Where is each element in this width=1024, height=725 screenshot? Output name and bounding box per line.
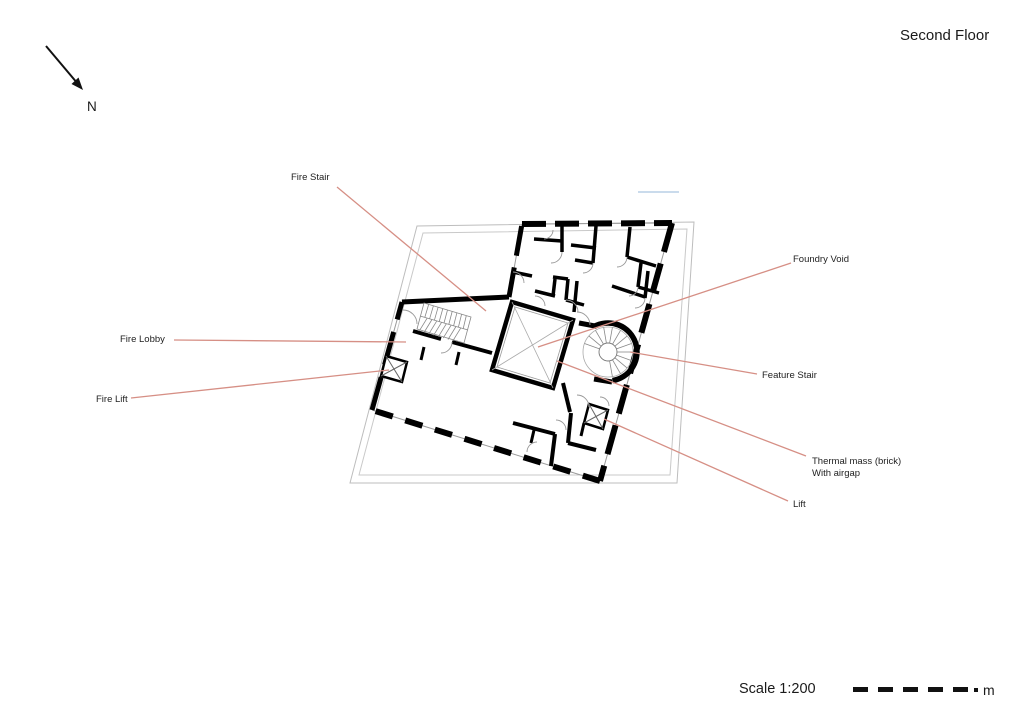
scale-label: Scale 1:200	[739, 681, 816, 697]
floor-plan-drawing	[0, 0, 1024, 725]
annotation-thermal-mass-line2: With airgap	[812, 468, 901, 480]
scale-bar	[853, 687, 978, 692]
scale-unit-label: m	[983, 682, 995, 698]
north-arrow-icon	[46, 46, 83, 90]
annotation-fire-stair-label: Fire Stair	[291, 172, 330, 184]
leader-line-lift	[604, 419, 788, 501]
lift-plan	[584, 404, 608, 429]
annotation-lift-label: Lift	[793, 499, 806, 511]
annotation-foundry-void-label: Foundry Void	[793, 254, 849, 266]
fire-stair-plan	[417, 303, 471, 343]
drawing-canvas: Second Floor N Fire Stair Fire Lobby Fir…	[0, 0, 1024, 725]
north-label: N	[87, 99, 97, 114]
leader-line-fire-lobby	[174, 340, 406, 342]
leader-line-feature-stair	[630, 352, 757, 374]
leader-line-fire-lift	[131, 370, 389, 398]
annotation-thermal-mass-label: Thermal mass (brick) With airgap	[812, 456, 901, 480]
fire-lift-plan	[381, 356, 407, 382]
leader-line-fire-stair	[337, 187, 486, 311]
annotation-fire-lift-label: Fire Lift	[96, 394, 128, 406]
leader-lines	[131, 187, 806, 501]
foundry-void-plan	[492, 302, 573, 388]
annotation-thermal-mass-line1: Thermal mass (brick)	[812, 456, 901, 468]
annotation-feature-stair-label: Feature Stair	[762, 370, 817, 382]
annotation-fire-lobby-label: Fire Lobby	[120, 334, 165, 346]
page-title: Second Floor	[900, 27, 989, 44]
